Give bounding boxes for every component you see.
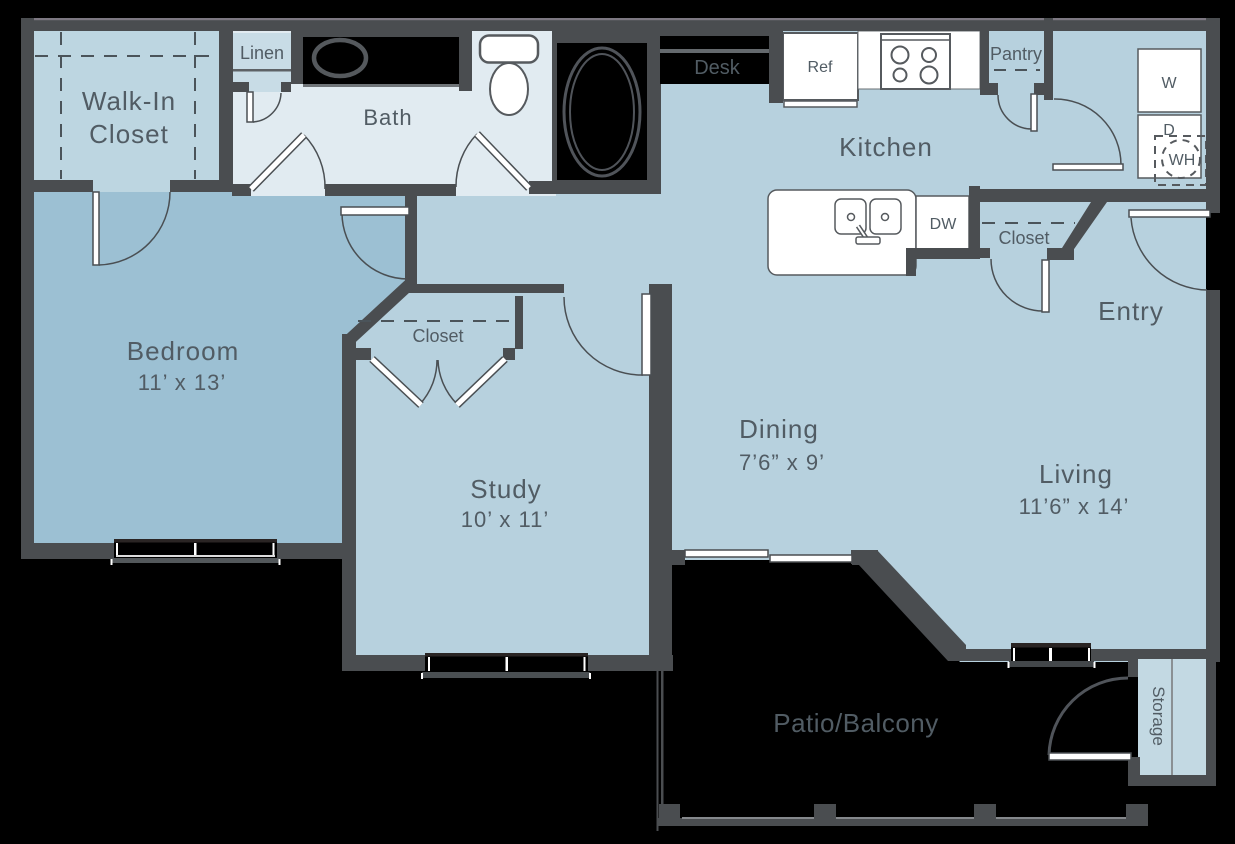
svg-text:Bedroom: Bedroom [127, 336, 240, 366]
svg-text:WH: WH [1169, 152, 1196, 169]
svg-text:10’ x 11’: 10’ x 11’ [461, 507, 550, 532]
svg-text:Living: Living [1039, 459, 1113, 489]
svg-text:Closet: Closet [89, 119, 169, 149]
svg-text:Pantry: Pantry [990, 44, 1042, 64]
svg-text:Walk-In: Walk-In [82, 86, 176, 116]
svg-text:Closet: Closet [998, 228, 1049, 248]
svg-text:7’6” x 9’: 7’6” x 9’ [739, 450, 825, 475]
svg-text:Bath: Bath [363, 105, 412, 130]
svg-text:DW: DW [930, 216, 958, 233]
svg-text:Entry: Entry [1098, 296, 1164, 326]
svg-text:Storage: Storage [1149, 686, 1168, 746]
svg-text:Linen: Linen [240, 43, 284, 63]
svg-text:11’ x 13’: 11’ x 13’ [138, 370, 227, 395]
svg-text:Ref: Ref [808, 59, 833, 76]
svg-text:Dining: Dining [739, 414, 819, 444]
svg-text:Study: Study [470, 474, 542, 504]
svg-text:Closet: Closet [412, 326, 463, 346]
svg-text:Kitchen: Kitchen [839, 132, 933, 162]
svg-text:Desk: Desk [694, 57, 741, 79]
svg-text:W: W [1161, 75, 1177, 92]
svg-text:Patio/Balcony: Patio/Balcony [773, 708, 938, 738]
svg-text:11’6” x 14’: 11’6” x 14’ [1019, 494, 1130, 519]
